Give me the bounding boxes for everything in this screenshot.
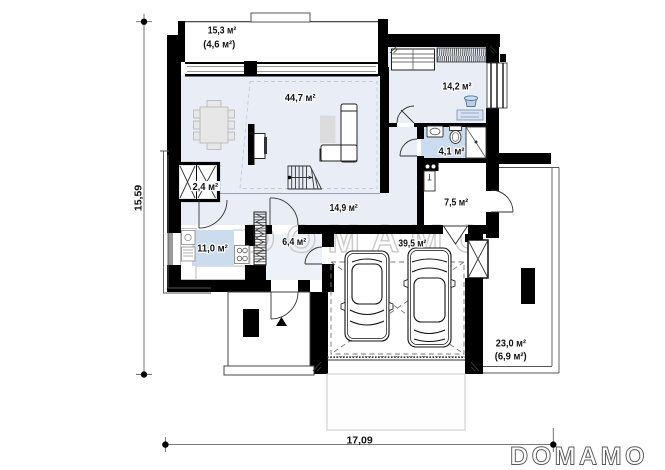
svg-text:(6,9 м²): (6,9 м²) bbox=[495, 352, 527, 363]
svg-text:15,3 м²: 15,3 м² bbox=[208, 25, 237, 36]
svg-text:14,9 м²: 14,9 м² bbox=[330, 203, 359, 214]
svg-text:23,0 м²: 23,0 м² bbox=[496, 338, 527, 349]
svg-text:2,4 м²: 2,4 м² bbox=[192, 182, 218, 193]
svg-text:39,5 м²: 39,5 м² bbox=[398, 239, 426, 250]
svg-text:(4,6 м²): (4,6 м²) bbox=[203, 39, 235, 50]
svg-text:17,09: 17,09 bbox=[346, 435, 372, 447]
svg-text:15,59: 15,59 bbox=[133, 185, 145, 211]
svg-text:4,1 м²: 4,1 м² bbox=[439, 147, 466, 158]
svg-text:7,5 м²: 7,5 м² bbox=[444, 197, 468, 208]
svg-text:11,0 м²: 11,0 м² bbox=[197, 244, 228, 255]
svg-text:44,7 м²: 44,7 м² bbox=[285, 93, 316, 104]
svg-text:DOMAMO: DOMAMO bbox=[510, 443, 648, 470]
svg-text:14,2 м²: 14,2 м² bbox=[443, 82, 472, 93]
svg-text:6,4 м²: 6,4 м² bbox=[282, 237, 306, 248]
